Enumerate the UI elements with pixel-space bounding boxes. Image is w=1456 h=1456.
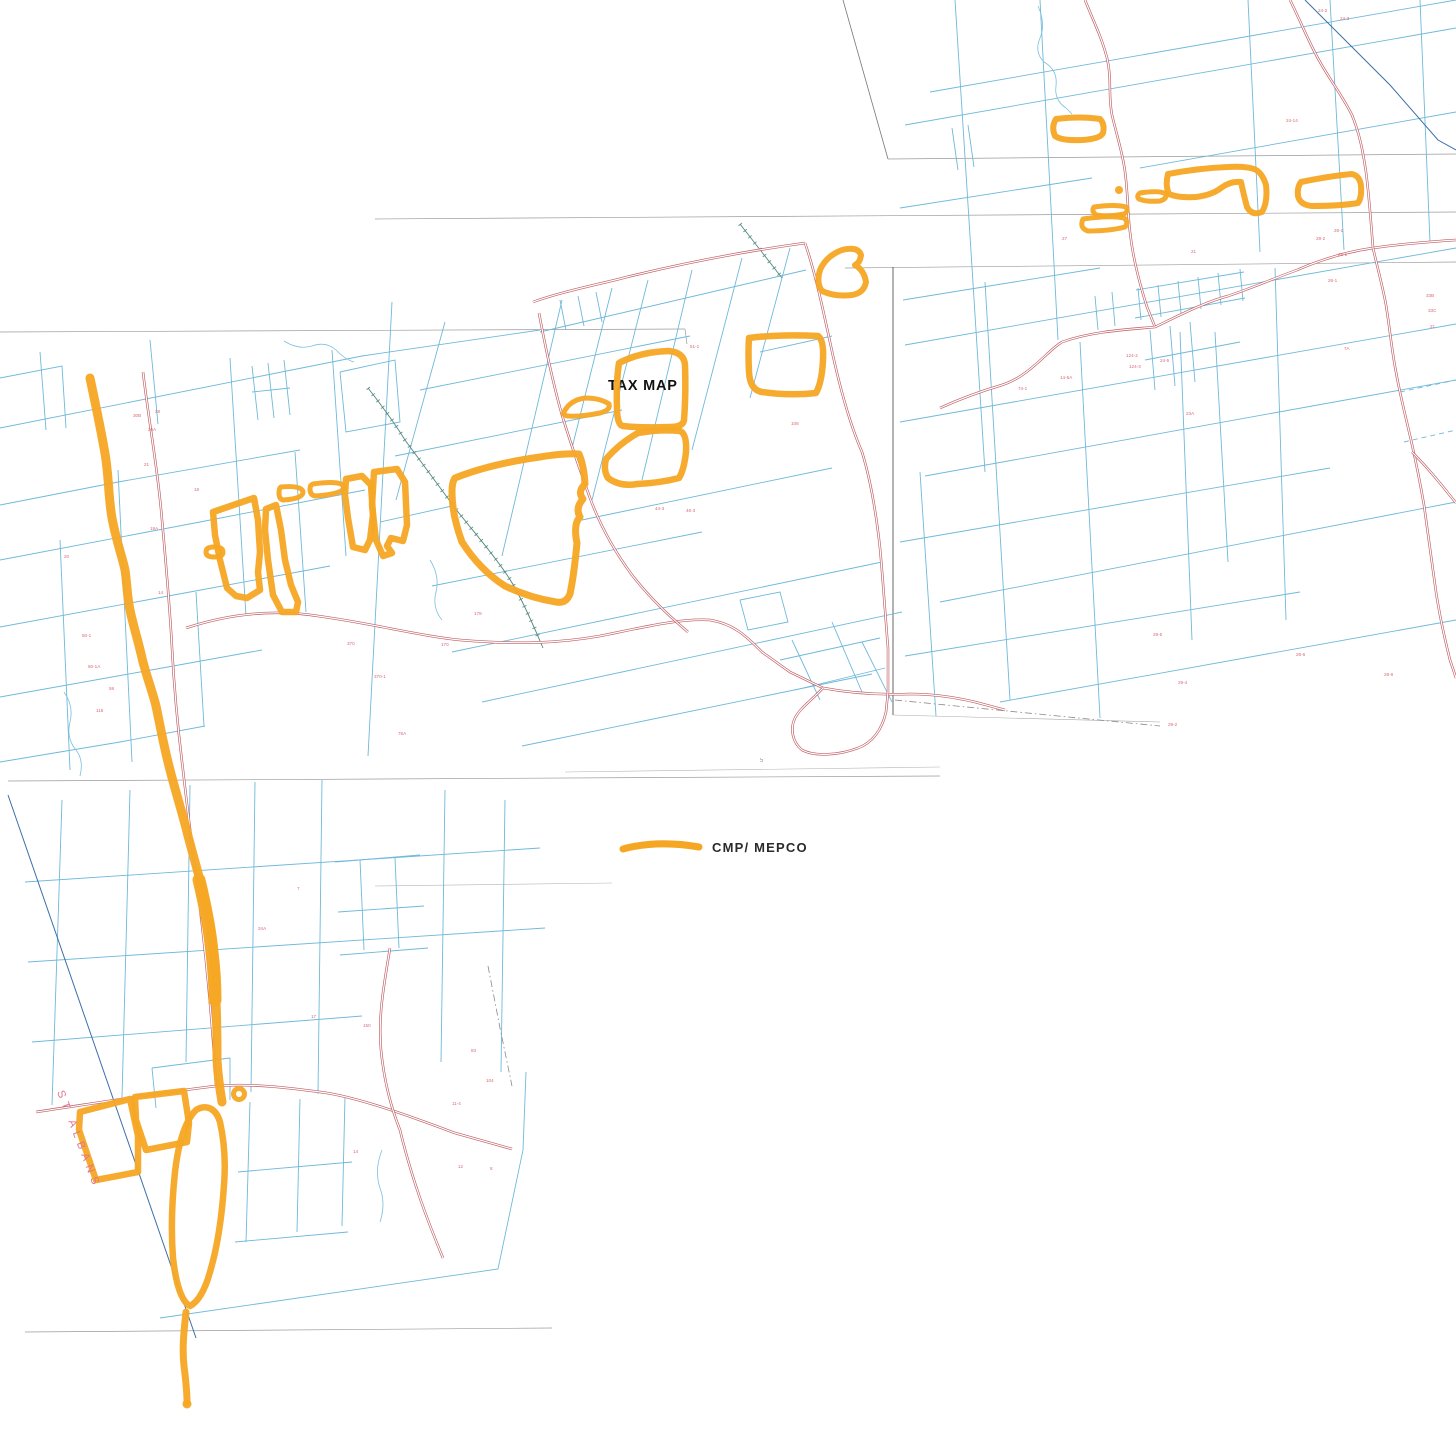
- road-centerline: [1290, 0, 1373, 248]
- road-centerline: [36, 1085, 512, 1149]
- parcel-boundary: [905, 592, 1300, 656]
- parcel-number-label: 170: [441, 642, 449, 647]
- cmp-mepco-highlight-layer: [79, 118, 1361, 1409]
- parcel-boundary: [52, 800, 62, 1105]
- parcel-boundary: [335, 855, 428, 955]
- parcel-number-label: 7: [297, 886, 300, 891]
- parcel-boundary: [740, 592, 788, 630]
- parcel-boundary-dashed: [1400, 380, 1456, 392]
- sheet-border-line: [893, 715, 1160, 722]
- cmp-mepco-highlight: [1298, 174, 1361, 206]
- parcel-number-label: 28: [155, 409, 161, 414]
- parcel-boundary: [251, 782, 255, 1092]
- parcel-number-label: 24-5: [1160, 358, 1170, 363]
- road-casing: [1373, 248, 1456, 678]
- road-casing: [539, 313, 688, 632]
- cmp-mepco-highlight: [1053, 118, 1103, 141]
- parcel-boundary: [1140, 112, 1456, 168]
- parcel-boundary: [925, 380, 1456, 476]
- parcel-number-label: 118: [96, 708, 104, 713]
- sheet-border-line: [565, 767, 940, 772]
- parcel-boundary: [0, 566, 330, 627]
- cmp-mepco-highlight-dot: [1115, 186, 1123, 194]
- road-casing: [143, 372, 216, 1086]
- parcel-number-label: 21: [144, 462, 150, 467]
- parcel-number-label: 26-1: [1328, 278, 1338, 283]
- parcel-number-label: 29-4: [1178, 680, 1188, 685]
- parcel-boundary: [295, 452, 306, 612]
- parcel-boundary: [60, 540, 70, 770]
- parcel-number-label: 370: [347, 641, 355, 646]
- road-casing: [533, 243, 805, 302]
- parcel-boundary: [32, 1016, 362, 1042]
- parcel-number-label: 24-2: [1318, 8, 1328, 13]
- parcel-boundary: [252, 360, 290, 420]
- cmp-mepco-highlight: [749, 335, 824, 394]
- parcel-boundary: [0, 726, 205, 762]
- parcel-boundary: [0, 650, 262, 697]
- legend: CMP/ MEPCO: [623, 840, 808, 855]
- parcel-number-label: 124-2: [1126, 353, 1138, 358]
- parcel-number-label: 5: [760, 758, 764, 764]
- parcel-number-label: 26A: [148, 427, 157, 432]
- sheet-border-line: [843, 0, 888, 159]
- sheet-border-line: [845, 262, 1456, 268]
- sheet-border-lines: [0, 0, 1456, 1332]
- parcel-boundary: [501, 800, 505, 1072]
- cmp-mepco-highlight: [605, 430, 686, 484]
- parcel-boundary: [985, 282, 1010, 700]
- parcel-boundary: [28, 928, 545, 962]
- road-casing: [792, 688, 888, 754]
- parcel-number-label: 14: [158, 590, 164, 595]
- parcel-number-label: 50-1A: [88, 664, 101, 669]
- parcel-number-label: 58: [109, 686, 115, 691]
- cmp-mepco-highlight: [279, 487, 303, 500]
- parcel-boundary: [582, 468, 832, 520]
- parcel-number-label: 21: [1430, 324, 1436, 329]
- parcel-number-label: 28-8: [1384, 672, 1394, 677]
- parcel-number-label: 104: [486, 1078, 494, 1083]
- cmp-mepco-highlight: [265, 505, 298, 612]
- sheet-border-line: [8, 776, 940, 781]
- parcel-boundary: [196, 592, 204, 726]
- parcel-boundary: [0, 366, 66, 428]
- parcel-boundary: [930, 0, 1456, 92]
- parcel-number-label: 34A: [258, 926, 267, 931]
- parcel-boundary: [900, 468, 1330, 542]
- stream-line: [64, 692, 81, 776]
- parcel-number-label: 76A: [398, 731, 407, 736]
- cmp-mepco-highlight-ring: [234, 1089, 245, 1100]
- parcel-number-label: 27: [1062, 236, 1068, 241]
- parcel-boundary: [955, 0, 985, 472]
- utility-dash-line: [488, 966, 512, 1086]
- stream-line: [284, 341, 354, 362]
- parcel-number-label: 29-5: [1153, 632, 1163, 637]
- parcel-number-label: 28-1: [1334, 228, 1344, 233]
- road-centerline: [940, 240, 1456, 408]
- road-casing: [940, 240, 1456, 408]
- parcel-number-label: 8: [490, 1166, 493, 1171]
- railroad-layer: [368, 224, 1160, 1086]
- road-casing: [186, 613, 823, 688]
- parcel-number-label: 23A: [1186, 411, 1195, 416]
- parcel-number-label: 29-2: [1168, 722, 1178, 727]
- parcel-boundary: [903, 268, 1100, 300]
- parcel-number-label: 124-3: [1129, 364, 1141, 369]
- parcel-boundary: [920, 472, 936, 716]
- parcel-number-label: 370-1: [374, 674, 386, 679]
- stream-line: [377, 1150, 383, 1222]
- cmp-mepco-highlight: [1138, 192, 1166, 202]
- parcel-boundary: [750, 248, 790, 398]
- parcel-number-label: 33C: [1428, 308, 1437, 313]
- parcel-boundary: [1040, 0, 1058, 340]
- parcel-boundary: [235, 1096, 352, 1242]
- road-casing: [823, 688, 1005, 710]
- parcel-boundary: [1145, 322, 1240, 390]
- road-casing: [1290, 0, 1373, 248]
- parcel-boundary: [40, 352, 46, 430]
- legend-label: CMP/ MEPCO: [712, 840, 808, 855]
- parcel-boundary: [900, 324, 1456, 422]
- parcel-boundary: [441, 790, 445, 1062]
- parcel-number-label: 17: [311, 1014, 317, 1019]
- parcel-boundary: [940, 502, 1456, 602]
- tax-map-canvas: 30B2826A2119A20181450-150-1A581181715083…: [0, 0, 1456, 1456]
- parcel-boundary: [122, 790, 130, 1098]
- road-centerline: [805, 243, 888, 692]
- stream-line: [430, 560, 442, 620]
- parcel-number-label: 11-4: [452, 1101, 461, 1106]
- parcel-boundary: [502, 300, 562, 556]
- cmp-mepco-highlight: [172, 1107, 225, 1306]
- road-centerline: [792, 688, 888, 754]
- parcel-boundary: [540, 270, 806, 332]
- parcel-boundary: [452, 562, 882, 652]
- sheet-border-line: [25, 1328, 552, 1332]
- road-centerline: [539, 313, 688, 632]
- parcel-number-label: 44-3: [655, 506, 665, 511]
- parcel-boundary: [572, 288, 612, 448]
- parcel-boundary: [1080, 342, 1100, 718]
- parcel-number-label: 14: [353, 1149, 359, 1154]
- parcel-boundary: [25, 848, 540, 882]
- cmp-mepco-highlight: [135, 1091, 189, 1150]
- parcel-boundary: [332, 350, 346, 556]
- parcel-number-label: 28-2: [1316, 236, 1326, 241]
- parcel-number-label: 51-1: [690, 344, 700, 349]
- cmp-mepco-highlight: [1167, 167, 1267, 213]
- road-centerline: [1085, 0, 1155, 327]
- sheet-border-line: [375, 883, 612, 886]
- parcel-boundary: [1275, 268, 1286, 620]
- parcel-number-label: 24-3: [1340, 16, 1350, 21]
- parcel-number-label: 24-14: [1286, 118, 1298, 123]
- parcel-number-label: 7A: [1344, 346, 1351, 351]
- parcel-number-label: 33B: [1426, 293, 1434, 298]
- road-centerline: [533, 243, 805, 302]
- cmp-mepco-highlight-dot: [183, 1400, 192, 1409]
- parcel-number-label: 20: [64, 554, 70, 559]
- parcel-boundary: [340, 360, 400, 432]
- sheet-border-line: [375, 212, 1456, 219]
- parcel-number-label: 19A: [150, 526, 159, 531]
- parcel-boundary: [905, 28, 1456, 125]
- cmp-mepco-highlight: [1082, 217, 1127, 231]
- cmp-mepco-highlight: [183, 1312, 187, 1402]
- cmp-mepco-highlight: [310, 483, 344, 496]
- sheet-border-line: [0, 329, 685, 332]
- parcel-number-label: 46-3: [686, 508, 696, 513]
- cmp-mepco-highlight: [564, 398, 610, 416]
- parcel-number-label: 74-1: [1018, 386, 1028, 391]
- parcel-number-label: 18: [194, 487, 200, 492]
- road-casing: [805, 243, 888, 692]
- parcel-number-label: 14-5A: [1060, 375, 1073, 380]
- parcel-number-label: 21: [1191, 249, 1197, 254]
- parcel-boundary: [522, 674, 872, 746]
- parcel-boundary: [318, 780, 322, 1094]
- parcel-boundary: [482, 612, 902, 702]
- parcel-boundary: [0, 490, 365, 560]
- parcel-number-label: 29-1: [1338, 252, 1348, 257]
- legend-swatch-line: [623, 844, 699, 849]
- parcel-boundary: [1180, 332, 1192, 640]
- cmp-mepco-highlight: [372, 469, 407, 556]
- parcel-boundary: [1000, 620, 1456, 702]
- cmp-mepco-highlight: [818, 249, 866, 296]
- cmp-mepco-highlight: [90, 378, 222, 1102]
- parcel-number-label: 28-6: [1296, 652, 1306, 657]
- parcel-boundary: [1215, 332, 1228, 562]
- road-casing: [380, 948, 443, 1258]
- cmp-mepco-highlight: [345, 476, 373, 550]
- road-centerline: [1373, 248, 1456, 678]
- parcel-number-label: 150: [363, 1023, 371, 1028]
- utility-dash-line: [895, 700, 1160, 726]
- parcel-number-label: 108: [791, 421, 799, 426]
- parcel-boundary: [900, 178, 1092, 208]
- parcel-number-label: 12: [458, 1164, 464, 1169]
- map-image: 30B2826A2119A20181450-150-1A581181715083…: [0, 0, 1456, 1456]
- parcel-boundary: [380, 506, 452, 522]
- parcel-boundary: [230, 358, 246, 616]
- town-boundary-line: [8, 795, 196, 1338]
- road-casing: [1085, 0, 1155, 327]
- parcel-number-label: 30B: [133, 413, 141, 418]
- parcel-number-label: 50-1: [82, 633, 92, 638]
- parcel-number-label: 83: [471, 1048, 477, 1053]
- parcel-boundary: [560, 292, 602, 330]
- road-casing: [36, 1085, 512, 1149]
- parcel-number-label: 178: [474, 611, 482, 616]
